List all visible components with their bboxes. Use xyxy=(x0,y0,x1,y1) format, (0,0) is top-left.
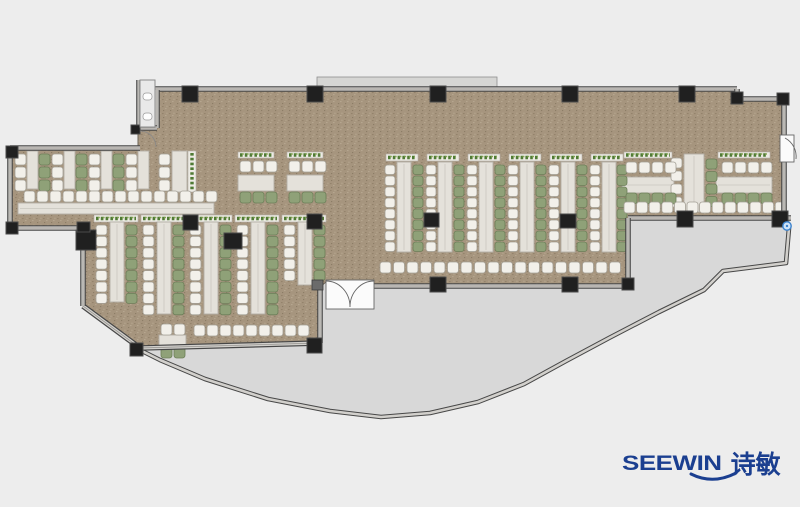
chair-white xyxy=(626,162,637,173)
chair-white xyxy=(52,154,63,165)
chair-white xyxy=(502,262,513,273)
chair-white xyxy=(190,282,201,292)
chair-white xyxy=(161,324,172,335)
chair-white xyxy=(750,202,761,213)
chair-white xyxy=(193,191,204,202)
chair-green xyxy=(495,165,505,175)
chair-white xyxy=(385,198,395,208)
chair-white xyxy=(467,165,477,175)
chair-white xyxy=(96,225,107,235)
chair-green xyxy=(173,259,184,269)
chair-white xyxy=(549,187,559,197)
chair-white xyxy=(508,209,518,219)
structural-column xyxy=(677,211,693,227)
chair-white xyxy=(237,305,248,315)
chair-green xyxy=(706,159,717,169)
chair-white xyxy=(737,202,748,213)
chair-green xyxy=(536,242,546,252)
chair-white xyxy=(508,165,518,175)
chair-white xyxy=(190,271,201,281)
chair-white xyxy=(240,161,251,172)
chair-white xyxy=(96,293,107,303)
chair-white xyxy=(154,191,165,202)
chair-white xyxy=(15,180,26,191)
chair-white xyxy=(488,262,499,273)
chair-white xyxy=(467,176,477,186)
chair-green xyxy=(536,187,546,197)
chair-green xyxy=(454,231,464,241)
chair-green xyxy=(706,184,717,194)
chair-white xyxy=(126,154,137,165)
chair-white xyxy=(549,198,559,208)
chair-white xyxy=(508,231,518,241)
chair-green xyxy=(495,231,505,241)
chair-white xyxy=(639,162,650,173)
chair-white xyxy=(748,162,759,173)
chair-white xyxy=(467,231,477,241)
chair-white xyxy=(590,165,600,175)
chair-white xyxy=(596,262,607,273)
chair-green xyxy=(267,305,278,315)
chair-green xyxy=(173,282,184,292)
chair-green xyxy=(495,176,505,186)
chair-green xyxy=(536,209,546,219)
structural-column xyxy=(430,86,446,102)
chair-white xyxy=(76,191,87,202)
chair-green xyxy=(454,242,464,252)
chair-white xyxy=(237,282,248,292)
chair-white xyxy=(426,187,436,197)
chair-white xyxy=(220,325,231,336)
chair-green xyxy=(113,167,124,178)
chair-white xyxy=(143,259,154,269)
chair-white xyxy=(143,225,154,235)
chair-green xyxy=(577,187,587,197)
chair-white xyxy=(284,248,295,258)
chair-green xyxy=(577,198,587,208)
chair-white xyxy=(722,162,733,173)
chair-white xyxy=(508,242,518,252)
chair-white xyxy=(237,259,248,269)
chair-white xyxy=(542,262,553,273)
chair-green xyxy=(617,165,627,175)
chair-green xyxy=(454,176,464,186)
chair-white xyxy=(529,262,540,273)
chair-green xyxy=(314,236,325,246)
chair-white xyxy=(467,187,477,197)
chair-white xyxy=(96,248,107,258)
chair-white xyxy=(52,180,63,191)
chair-white xyxy=(549,165,559,175)
chair-green xyxy=(267,259,278,269)
chair-white xyxy=(102,191,113,202)
chair-green xyxy=(173,271,184,281)
desk-table xyxy=(27,151,38,189)
chair-green xyxy=(126,236,137,246)
chair-white xyxy=(652,162,663,173)
chair-white xyxy=(610,262,621,273)
chair-white xyxy=(115,191,126,202)
chair-white xyxy=(583,262,594,273)
chair-white xyxy=(426,231,436,241)
structural-column xyxy=(307,338,322,353)
chair-white xyxy=(662,202,673,213)
chair-white xyxy=(508,220,518,230)
desk-table xyxy=(101,151,112,189)
chair-white xyxy=(143,271,154,281)
chair-white xyxy=(284,259,295,269)
cabinet-knob-icon xyxy=(143,93,152,100)
chair-white xyxy=(207,325,218,336)
chair-green xyxy=(39,180,50,191)
planter-strip xyxy=(188,151,196,192)
chair-green xyxy=(126,293,137,303)
chair-white xyxy=(190,236,201,246)
structural-column xyxy=(77,222,90,232)
chair-green xyxy=(267,248,278,258)
chair-white xyxy=(590,220,600,230)
chair-green xyxy=(536,220,546,230)
chair-white xyxy=(637,202,648,213)
chair-white xyxy=(167,191,178,202)
chair-white xyxy=(385,209,395,219)
chair-white xyxy=(590,176,600,186)
chair-white xyxy=(549,220,559,230)
chair-green xyxy=(315,192,326,203)
structural-column xyxy=(562,86,578,102)
structural-column xyxy=(424,213,439,227)
chair-white xyxy=(128,191,139,202)
chair-white xyxy=(590,198,600,208)
chair-green xyxy=(113,180,124,191)
chair-white xyxy=(665,162,676,173)
chair-white xyxy=(284,225,295,235)
chair-white xyxy=(143,305,154,315)
structural-column xyxy=(560,214,576,228)
chair-white xyxy=(50,191,61,202)
chair-green xyxy=(495,198,505,208)
chair-white xyxy=(141,191,152,202)
structural-column xyxy=(6,146,18,158)
chair-white xyxy=(426,176,436,186)
chair-white xyxy=(143,293,154,303)
chair-white xyxy=(159,180,170,191)
chair-white xyxy=(96,271,107,281)
chair-white xyxy=(590,209,600,219)
chair-white xyxy=(52,167,63,178)
chair-white xyxy=(385,220,395,230)
chair-green xyxy=(536,165,546,175)
chair-white xyxy=(461,262,472,273)
chair-white xyxy=(712,202,723,213)
chair-white xyxy=(190,305,201,315)
chair-white xyxy=(385,165,395,175)
chair-green xyxy=(495,242,505,252)
chair-white xyxy=(96,259,107,269)
structural-column xyxy=(430,277,446,292)
wall-node xyxy=(312,280,323,290)
chair-white xyxy=(143,236,154,246)
chair-green xyxy=(267,236,278,246)
chair-white xyxy=(426,165,436,175)
chair-white xyxy=(159,167,170,178)
chair-green xyxy=(413,176,423,186)
chair-white xyxy=(15,167,26,178)
chair-white xyxy=(407,262,418,273)
chair-green xyxy=(536,231,546,241)
chair-white xyxy=(89,180,100,191)
desk-table xyxy=(172,151,187,192)
chair-white xyxy=(37,191,48,202)
chair-white xyxy=(194,325,205,336)
chair-green xyxy=(577,242,587,252)
chair-green xyxy=(126,248,137,258)
chair-white xyxy=(556,262,567,273)
structural-column xyxy=(622,278,634,290)
structural-column xyxy=(777,93,789,105)
chair-white xyxy=(259,325,270,336)
chair-white xyxy=(394,262,405,273)
chair-white xyxy=(467,198,477,208)
chair-white xyxy=(143,282,154,292)
logo-swoosh-icon xyxy=(688,472,740,484)
chair-green xyxy=(173,248,184,258)
chair-white xyxy=(590,242,600,252)
chair-white xyxy=(246,325,257,336)
chair-green xyxy=(173,293,184,303)
chair-white xyxy=(549,176,559,186)
desk-table xyxy=(64,151,75,189)
chair-green xyxy=(173,305,184,315)
desk-table xyxy=(287,175,323,191)
chair-white xyxy=(380,262,391,273)
structural-column xyxy=(562,277,578,292)
chair-white xyxy=(315,161,326,172)
chair-green xyxy=(173,225,184,235)
chair-white xyxy=(126,180,137,191)
chair-white xyxy=(266,161,277,172)
chair-white xyxy=(126,167,137,178)
chair-white xyxy=(253,161,264,172)
chair-green xyxy=(577,176,587,186)
structural-column xyxy=(731,92,743,104)
chair-green xyxy=(267,293,278,303)
chair-green xyxy=(577,209,587,219)
chair-white xyxy=(467,209,477,219)
chair-green xyxy=(413,165,423,175)
chair-white xyxy=(272,325,283,336)
structural-column xyxy=(76,230,96,250)
chair-white xyxy=(284,236,295,246)
chair-green xyxy=(314,271,325,281)
chair-white xyxy=(467,242,477,252)
chair-white xyxy=(515,262,526,273)
selection-handle-dot xyxy=(786,225,788,227)
chair-white xyxy=(24,191,35,202)
floor-plan-canvas: SEEWIN 诗敏 xyxy=(0,0,800,507)
chair-white xyxy=(508,198,518,208)
chair-green xyxy=(454,209,464,219)
chair-white xyxy=(448,262,459,273)
chair-white xyxy=(298,325,309,336)
chair-green xyxy=(220,293,231,303)
chair-green xyxy=(495,209,505,219)
chair-green xyxy=(126,259,137,269)
desk-table xyxy=(138,151,149,189)
chair-white xyxy=(549,242,559,252)
logo-brand-text: SEEWIN xyxy=(622,452,722,473)
chair-green xyxy=(266,192,277,203)
chair-green xyxy=(220,305,231,315)
brand-logo: SEEWIN 诗敏 xyxy=(622,452,781,478)
desk-table xyxy=(238,175,274,191)
chair-white xyxy=(190,293,201,303)
chair-white xyxy=(206,191,217,202)
chair-green xyxy=(454,187,464,197)
chair-white xyxy=(549,209,559,219)
chair-green xyxy=(76,154,87,165)
chair-green xyxy=(253,192,264,203)
chair-green xyxy=(314,259,325,269)
chair-white xyxy=(700,202,711,213)
chair-white xyxy=(624,202,635,213)
chair-white xyxy=(190,259,201,269)
chair-white xyxy=(467,220,477,230)
chair-green xyxy=(126,225,137,235)
chair-green xyxy=(39,154,50,165)
floor-plan xyxy=(0,0,800,507)
chair-green xyxy=(536,176,546,186)
structural-column xyxy=(224,233,242,249)
chair-green xyxy=(314,248,325,258)
chair-green xyxy=(454,198,464,208)
chair-green xyxy=(413,242,423,252)
chair-green xyxy=(413,209,423,219)
structural-column xyxy=(131,125,140,134)
structural-column xyxy=(6,222,18,234)
chair-white xyxy=(421,262,432,273)
chair-white xyxy=(508,187,518,197)
chair-white xyxy=(385,231,395,241)
chair-white xyxy=(434,262,445,273)
chair-white xyxy=(96,282,107,292)
chair-white xyxy=(284,271,295,281)
chair-white xyxy=(569,262,580,273)
chair-white xyxy=(89,191,100,202)
chair-white xyxy=(174,324,185,335)
chair-white xyxy=(725,202,736,213)
chair-green xyxy=(302,192,313,203)
chair-green xyxy=(267,225,278,235)
chair-green xyxy=(577,220,587,230)
chair-green xyxy=(220,271,231,281)
chair-green xyxy=(413,198,423,208)
chair-white xyxy=(385,187,395,197)
chair-white xyxy=(285,325,296,336)
chair-green xyxy=(617,187,627,197)
chair-white xyxy=(63,191,74,202)
chair-green xyxy=(289,192,300,203)
chair-white xyxy=(671,184,682,194)
chair-white xyxy=(96,236,107,246)
chair-white xyxy=(159,154,170,165)
chair-white xyxy=(385,242,395,252)
chair-green xyxy=(577,165,587,175)
chair-green xyxy=(267,271,278,281)
chair-green xyxy=(617,176,627,186)
chair-green xyxy=(220,282,231,292)
cabinet-knob-icon xyxy=(143,113,152,120)
structural-column xyxy=(679,86,695,102)
structural-column xyxy=(307,214,322,229)
chair-green xyxy=(413,220,423,230)
chair-green xyxy=(113,154,124,165)
structural-column xyxy=(130,343,143,356)
chair-green xyxy=(454,165,464,175)
chair-white xyxy=(761,162,772,173)
chair-green xyxy=(126,271,137,281)
chair-white xyxy=(475,262,486,273)
chair-green xyxy=(495,220,505,230)
chair-green xyxy=(76,180,87,191)
chair-green xyxy=(495,187,505,197)
chair-white xyxy=(289,161,300,172)
chair-white xyxy=(190,248,201,258)
chair-white xyxy=(143,248,154,258)
chair-green xyxy=(413,231,423,241)
chair-green xyxy=(577,231,587,241)
chair-green xyxy=(454,220,464,230)
chair-green xyxy=(39,167,50,178)
structural-column xyxy=(307,86,323,102)
chair-white xyxy=(508,176,518,186)
chair-white xyxy=(590,231,600,241)
chair-green xyxy=(706,172,717,182)
chair-white xyxy=(426,242,436,252)
chair-white xyxy=(233,325,244,336)
chair-green xyxy=(536,198,546,208)
chair-white xyxy=(89,167,100,178)
chair-white xyxy=(649,202,660,213)
chair-white xyxy=(237,293,248,303)
chair-green xyxy=(267,282,278,292)
structural-column xyxy=(182,86,198,102)
chair-white xyxy=(385,176,395,186)
chair-white xyxy=(735,162,746,173)
chair-green xyxy=(240,192,251,203)
chair-green xyxy=(173,236,184,246)
chair-white xyxy=(590,187,600,197)
chair-white xyxy=(237,271,248,281)
chair-white xyxy=(302,161,313,172)
structural-column xyxy=(183,215,198,230)
chair-green xyxy=(220,259,231,269)
chair-white xyxy=(89,154,100,165)
chair-white xyxy=(549,231,559,241)
chair-green xyxy=(76,167,87,178)
chair-green xyxy=(126,282,137,292)
chair-white xyxy=(180,191,191,202)
chair-green xyxy=(413,187,423,197)
chair-white xyxy=(426,198,436,208)
